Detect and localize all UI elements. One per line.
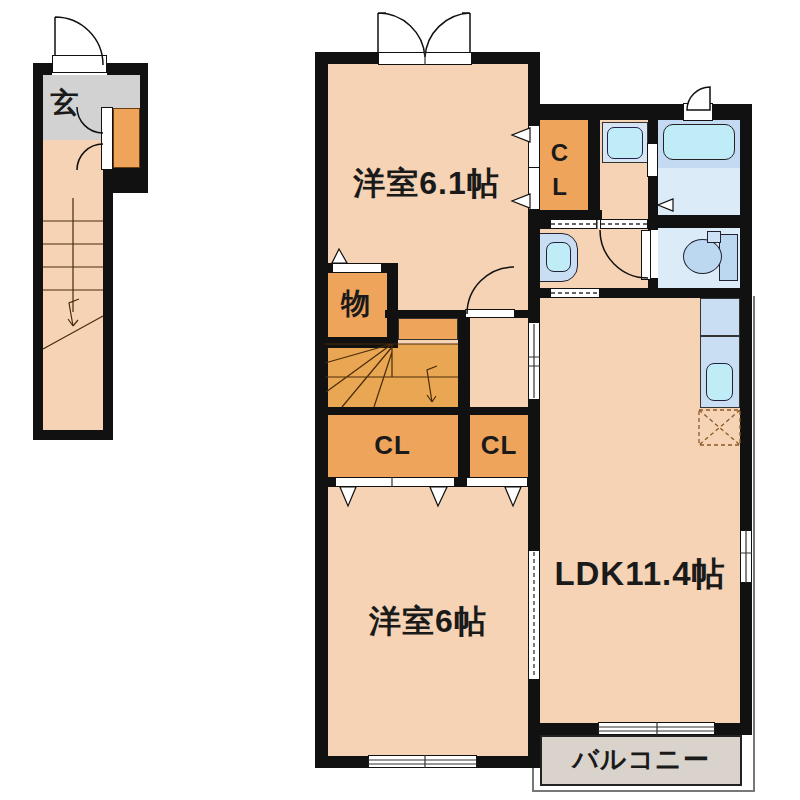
casement-window-arc: [378, 13, 470, 57]
kitchen-counter-upper: [700, 298, 740, 336]
room-label-ldk: LDK11.4帖: [540, 556, 740, 592]
wall: [33, 63, 43, 440]
wall: [382, 263, 398, 273]
closet-main-door-panel: [528, 125, 540, 168]
shoe-cabinet: [113, 108, 140, 168]
floor-plan: 玄 洋室6.1帖 CL 物 CL CL 洋室6帖 LDK11.4帖 バルコニー: [0, 0, 800, 800]
vanity-basin: [546, 242, 571, 272]
wall: [315, 337, 398, 348]
washroom-sliding-door: [550, 288, 600, 298]
room-label-closet-small: CL: [470, 431, 528, 460]
bathroom-floor: [658, 168, 740, 215]
wall: [315, 477, 335, 487]
wall: [113, 168, 148, 193]
wall: [528, 477, 540, 487]
room-label-genkan: 玄: [46, 88, 84, 119]
stairwell-counter: [398, 318, 458, 340]
washing-machine-pan-inner: [607, 127, 643, 159]
sliding-track: [550, 219, 597, 229]
room-label-balcony: バルコニー: [540, 745, 742, 774]
bathroom-window-sill: [683, 103, 713, 121]
stairs-2f: [325, 344, 458, 407]
closet-main-door-panel: [528, 167, 540, 210]
genkan-door-leaf: [101, 107, 113, 170]
kitchen-sink: [706, 363, 733, 401]
bedroom2-window: [368, 755, 477, 768]
ldk-side-window: [740, 530, 752, 583]
wall: [648, 215, 752, 228]
bathtub: [663, 124, 735, 160]
wall: [528, 104, 752, 120]
wall: [740, 112, 752, 735]
room-label-storage: 物: [325, 288, 387, 320]
room-label-closet-main: CL: [547, 136, 573, 203]
wall: [515, 310, 528, 318]
hall-opening: [528, 322, 540, 400]
wall: [387, 263, 398, 337]
bedroom1-window-sill: [378, 52, 472, 65]
wall: [103, 168, 113, 440]
wall: [315, 407, 540, 415]
bathroom-door-opening: [647, 143, 658, 177]
storage-door: [332, 263, 382, 273]
closet-small-door-sill: [466, 477, 528, 487]
room-label-bedroom2: 洋室6帖: [328, 604, 528, 639]
balcony-window: [598, 722, 715, 735]
bedroom1-door-sill: [465, 309, 515, 318]
wall: [528, 210, 540, 322]
room-label-bedroom1: 洋室6.1帖: [325, 166, 528, 201]
wall: [33, 430, 113, 440]
room-label-closet-large: CL: [327, 431, 458, 460]
bedroom2-ldk-sliding-door: [528, 550, 540, 680]
entrance-hall-floor: [43, 140, 103, 430]
wall: [588, 120, 600, 210]
wall: [540, 219, 550, 229]
wall: [528, 400, 540, 550]
entrance-door-sill: [52, 55, 107, 73]
toilet-door-leaf: [641, 230, 651, 280]
wall: [325, 263, 332, 273]
toilet-bowl: [683, 239, 722, 274]
wall: [458, 310, 470, 480]
wall: [455, 477, 466, 487]
sliding-track: [600, 219, 648, 229]
toilet-control-box: [707, 231, 721, 243]
closet-large-door-sill: [335, 477, 455, 487]
